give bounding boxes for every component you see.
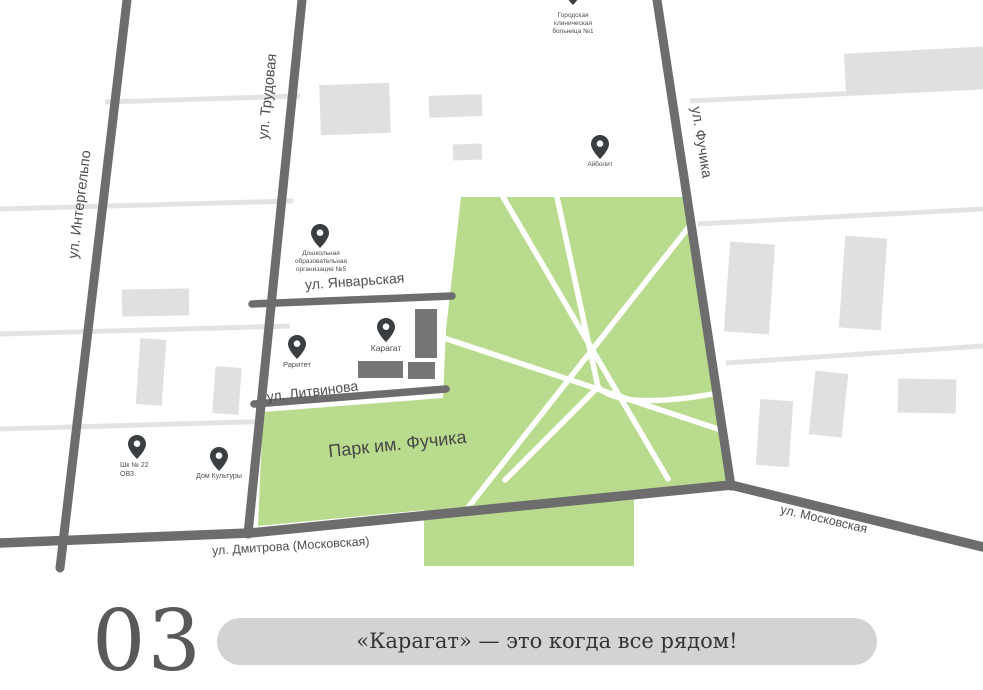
minor-road [0,201,293,209]
poi-raritet: Раритет [283,360,312,369]
location-pin-icon [210,447,228,471]
building [453,143,483,160]
building [898,378,957,413]
poi-school22-line1: Шк № 22 [120,462,149,469]
poi-hospital-line1: Городская [558,12,589,19]
street-moskovskaya [731,485,983,547]
building [136,338,167,406]
minor-road [0,421,283,429]
label-fuchika: ул. Фучика [687,106,714,181]
poi-school22-line2: ОВЗ [120,471,134,478]
building [408,362,435,379]
building [122,288,189,316]
poi-preschool-line3: организация №5 [296,266,347,273]
location-pin-icon [564,0,582,5]
footer: 03 «Карагат» — это когда все рядом! [0,592,983,690]
location-pin-icon [288,335,306,359]
slogan-text: «Карагат» — это когда все рядом! [356,629,737,653]
poi-hospital-line3: больница №1 [552,27,594,35]
building [358,361,403,378]
section-number: 03 [92,599,203,683]
city-map: Городская клиническая больница №1 Айболи… [0,0,983,592]
building [319,83,391,135]
building [212,366,241,415]
building [756,399,794,467]
minor-road [726,346,983,363]
minor-road [698,209,983,224]
poi-preschool-line1: Дошкольная [302,250,340,257]
building [724,242,775,335]
poi-preschool-line2: образовательная [295,257,348,265]
building [415,309,437,358]
poi-dom-kultury: Дом Культуры [196,473,242,480]
location-pin-icon [591,135,609,159]
location-pin-icon [311,224,329,248]
building [839,236,887,331]
poi-aybolit: Айболит [587,160,613,168]
street-intergelpo [60,0,127,568]
street-yanvarskaya [252,296,452,304]
location-pin-icon [128,435,146,459]
poi-hospital-line2: клиническая [554,20,592,27]
poi-karagat: Карагат [371,343,402,353]
minor-road [0,326,290,334]
building [809,371,849,438]
building [844,46,983,96]
map-infographic: Городская клиническая больница №1 Айболи… [0,0,983,690]
building [429,94,483,118]
slogan-pill: «Карагат» — это когда все рядом! [217,618,877,665]
location-pin-icon [377,318,395,342]
